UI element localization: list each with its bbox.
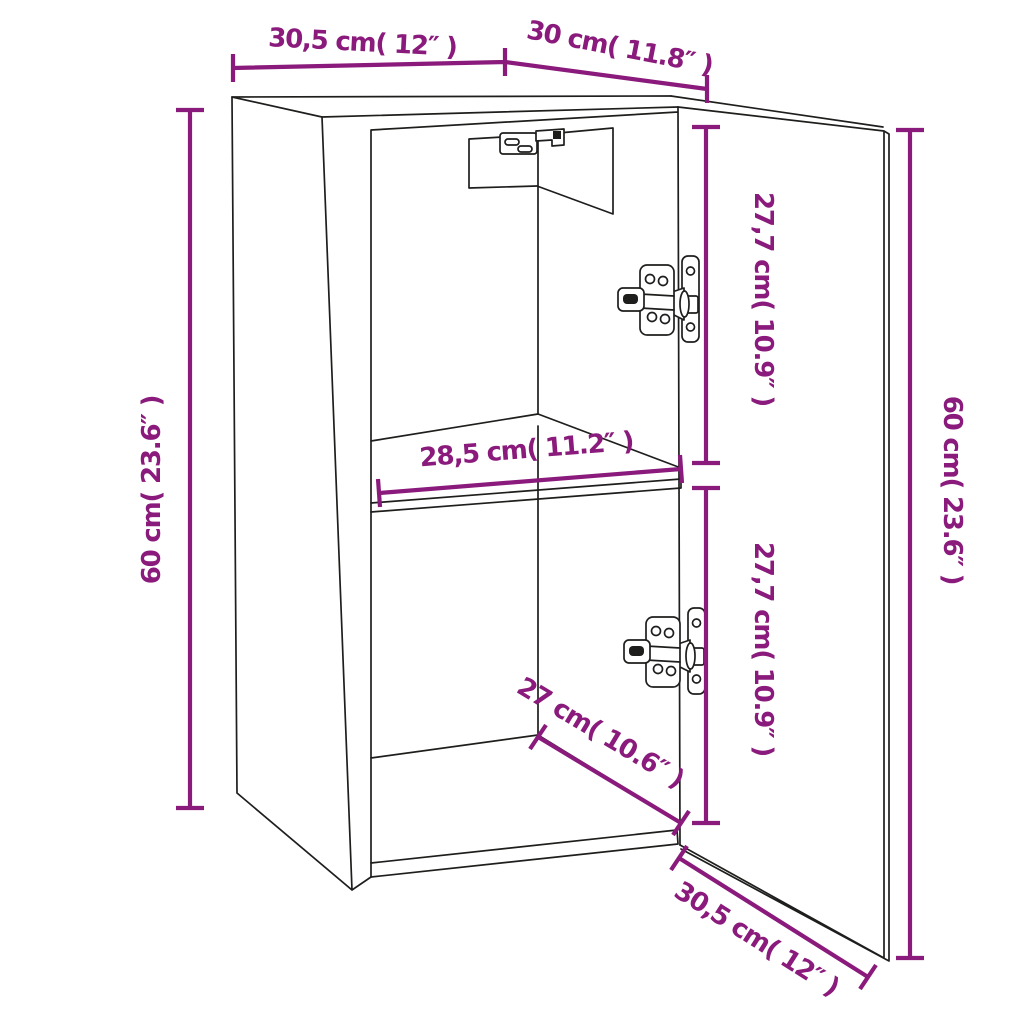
dim-label-upper-compartment: 27,7 cm( 10.9″ ) xyxy=(748,192,778,406)
dim-label-lower-compartment: 27,7 cm( 10.9″ ) xyxy=(748,542,778,756)
dim-label-top-depth: 30 cm( 11.8″ ) xyxy=(524,15,715,80)
dim-label-inner-width: 28,5 cm( 11.2″ ) xyxy=(418,427,634,474)
top-face xyxy=(232,96,678,117)
hinge-upper-icon xyxy=(618,256,699,342)
left-panel xyxy=(232,97,371,890)
diagram-canvas: 30,5 cm( 12″ ) 30 cm( 11.8″ ) 60 cm( 23.… xyxy=(0,0,1024,1024)
dim-label-door-height: 60 cm( 23.6″ ) xyxy=(937,396,967,585)
dimension-lines xyxy=(176,48,924,989)
dim-line-left-height xyxy=(176,110,204,808)
dim-label-left-height: 60 cm( 23.6″ ) xyxy=(137,396,167,585)
dim-label-top-width: 30,5 cm( 12″ ) xyxy=(267,23,457,63)
wall-mount-bracket-icon xyxy=(500,129,564,154)
dim-label-bottom-width: 30,5 cm( 12″ ) xyxy=(669,876,844,1003)
bottom-edges xyxy=(371,830,678,877)
hinge-lower-icon xyxy=(624,608,705,694)
dimension-labels: 30,5 cm( 12″ ) 30 cm( 11.8″ ) 60 cm( 23.… xyxy=(137,15,967,1002)
open-door xyxy=(671,96,889,961)
dim-line-door-height xyxy=(896,130,924,958)
cabinet-dimension-diagram: 30,5 cm( 12″ ) 30 cm( 11.8″ ) 60 cm( 23.… xyxy=(0,0,1024,1024)
